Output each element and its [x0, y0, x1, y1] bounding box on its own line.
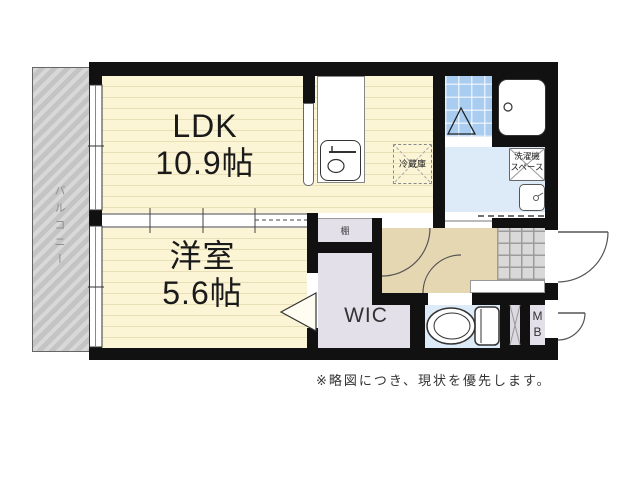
- wall-shelf-bottom: [318, 242, 372, 253]
- pipe-space: [510, 305, 520, 345]
- balcony-label: バルコニー: [51, 172, 67, 282]
- washer-space-label: 洗濯機 スペース: [505, 151, 549, 173]
- entrance-door: [558, 232, 608, 282]
- ldk-label: LDK 10.9帖: [110, 108, 300, 182]
- disclaimer-note: ※略図につき、現状を優先します。: [316, 370, 576, 389]
- bath-doorway: [445, 137, 492, 147]
- wall-ps-right: [520, 300, 530, 348]
- wall-left-top: [89, 62, 102, 85]
- wall-kitchen-stub: [303, 62, 315, 103]
- wall-hall-left: [372, 218, 382, 293]
- wall-right-mid: [545, 283, 558, 300]
- meter-box-line2: B: [530, 324, 545, 340]
- ldk-size: 10.9帖: [110, 145, 300, 182]
- meter-box-line1: M: [530, 308, 545, 324]
- entrance-step: [470, 280, 545, 293]
- entrance-tile: [497, 228, 545, 280]
- toilet-room-floor: [425, 305, 500, 348]
- wall-western-right-upper: [307, 213, 318, 273]
- wall-toilet-left: [410, 293, 425, 348]
- ldk-name: LDK: [110, 108, 300, 145]
- toilet-doorway: [428, 293, 472, 305]
- wic-label: WIC: [330, 304, 402, 328]
- washer-space-line1: 洗濯機: [505, 151, 549, 162]
- western-room-size: 5.6帖: [105, 275, 300, 312]
- kitchen-partition-panel: [303, 103, 314, 186]
- wall-genkan-north: [492, 218, 545, 228]
- wic-floor-upper: [318, 253, 372, 295]
- washer-space-line2: スペース: [505, 162, 549, 173]
- bathtub: [498, 79, 546, 136]
- wall-ps-left: [500, 305, 510, 348]
- wall-left-mid: [89, 210, 102, 226]
- wall-right-low: [545, 338, 558, 352]
- meter-box-door: [558, 313, 585, 340]
- western-room-label: 洋室 5.6帖: [105, 238, 300, 312]
- wall-toilet-top-right: [472, 293, 545, 305]
- wic-doorway: [307, 273, 318, 328]
- western-room-name: 洋室: [105, 238, 300, 275]
- kitchen-sink: [320, 140, 361, 181]
- wall-top: [90, 62, 558, 76]
- wall-bottom: [89, 348, 558, 360]
- meter-box-label: M B: [530, 308, 545, 340]
- wall-left-bottom: [89, 345, 102, 360]
- washbasin: [519, 184, 545, 211]
- bathroom-floor: [445, 76, 492, 137]
- refrigerator-label: 冷蔵庫: [391, 159, 434, 170]
- wall-western-right-lower: [307, 328, 318, 348]
- ldk-hall-doorway: [382, 213, 430, 228]
- room-divider-track: [102, 213, 307, 228]
- wall-ldk-wet: [433, 62, 445, 228]
- shelf-label: 棚: [318, 224, 372, 237]
- floorplan-canvas: LDK 10.9帖 洋室 5.6帖 WIC 棚 冷蔵庫 洗濯機 スペース M B…: [0, 0, 640, 480]
